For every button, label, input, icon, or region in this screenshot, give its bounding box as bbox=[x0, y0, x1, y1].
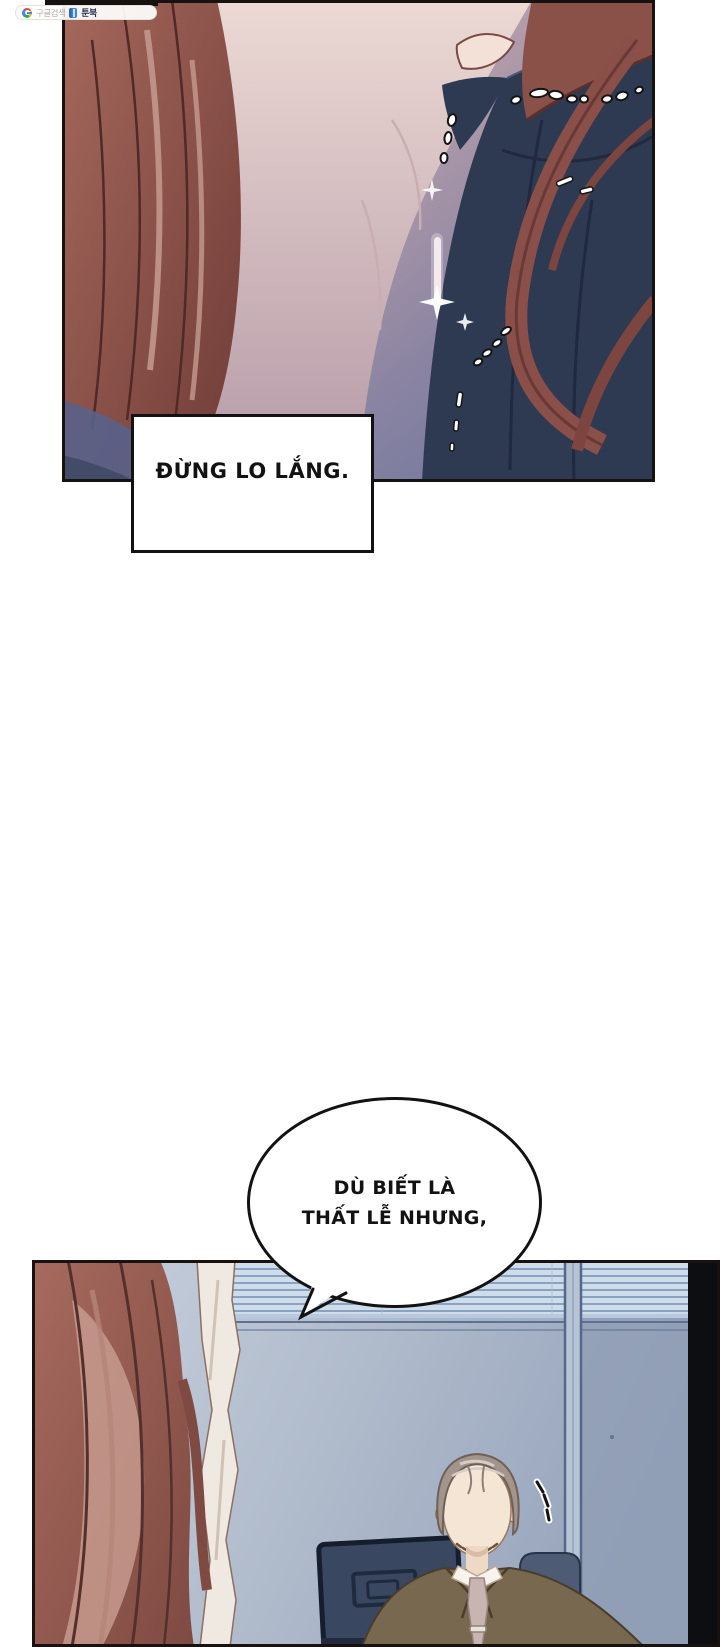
toonbook-book-icon bbox=[69, 8, 77, 18]
caption-box: ĐỪNG LO LẮNG. bbox=[131, 414, 374, 553]
tie-clip bbox=[470, 1626, 486, 1632]
watermark-pill: 구글검색 툰북 bbox=[15, 5, 157, 20]
dark-side-strip bbox=[688, 1260, 720, 1647]
speech-line-2: THẤT LỄ NHƯNG, bbox=[302, 1203, 487, 1233]
watermark-brand-label: 툰북 bbox=[81, 6, 97, 19]
google-g-icon bbox=[22, 8, 32, 18]
watermark-search-label: 구글검색 bbox=[36, 7, 65, 19]
speech-bubble-tail bbox=[290, 1275, 355, 1325]
panel-2-artwork bbox=[32, 1260, 720, 1647]
caption-text: ĐỪNG LO LẮNG. bbox=[156, 459, 350, 483]
panel-1-artwork bbox=[62, 0, 655, 482]
webtoon-page: 구글검색 툰북 ĐỪNG LO LẮNG. bbox=[0, 0, 720, 1647]
speech-line-1: DÙ BIẾT LÀ bbox=[334, 1173, 456, 1203]
